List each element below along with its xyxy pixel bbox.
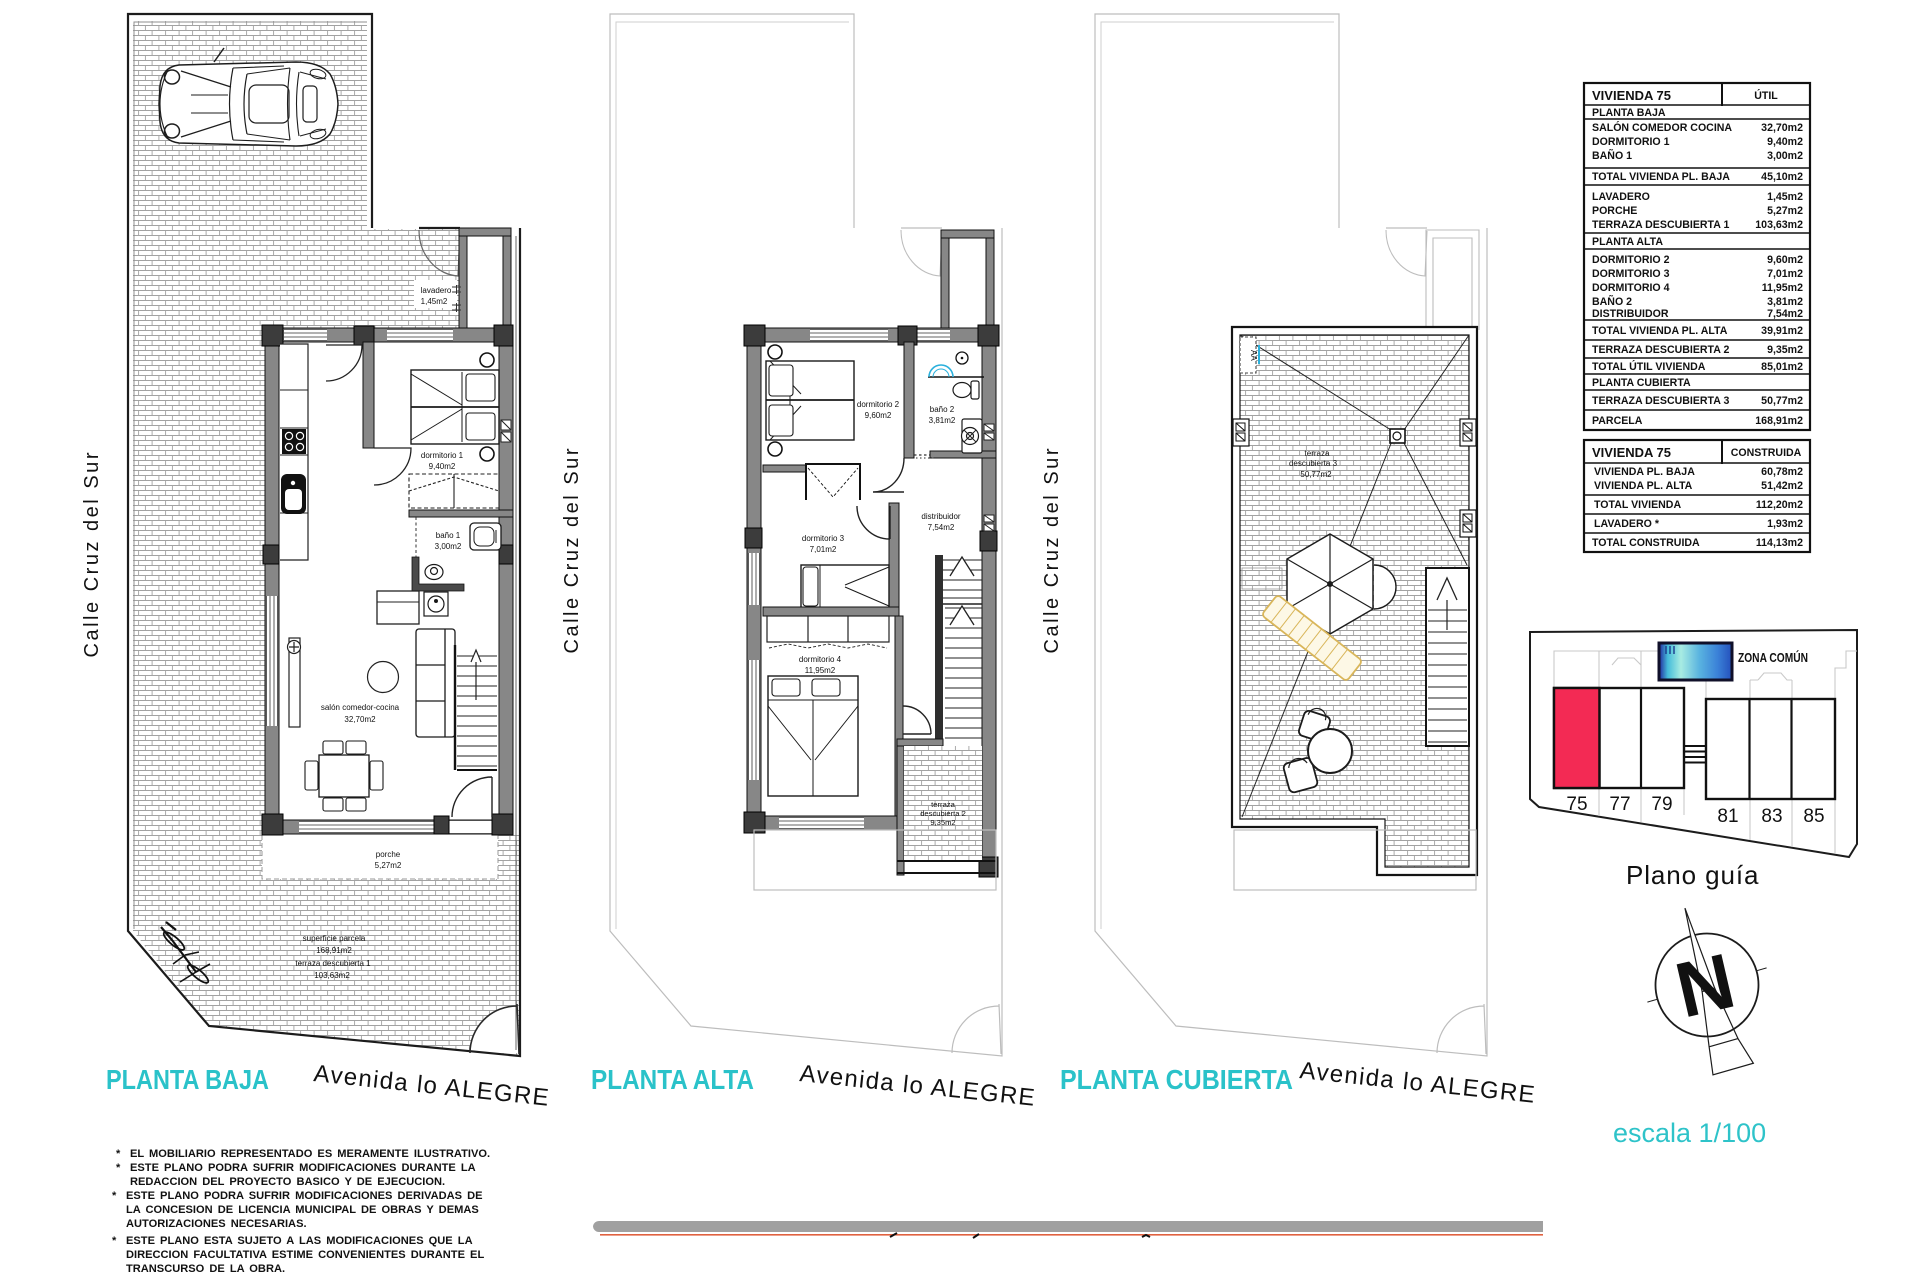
svg-text:75: 75 [1566, 794, 1587, 815]
svg-text:7,01m2: 7,01m2 [1767, 268, 1803, 280]
svg-text:TERRAZA DESCUBIERTA 2: TERRAZA DESCUBIERTA 2 [1592, 344, 1729, 356]
svg-text:85,01m2: 85,01m2 [1761, 361, 1803, 373]
svg-text:Plano guía: Plano guía [1626, 860, 1759, 890]
svg-text:AA: AA [1249, 350, 1258, 361]
svg-text:11,95m2: 11,95m2 [805, 666, 836, 675]
svg-text:DORMITORIO 2: DORMITORIO 2 [1592, 254, 1670, 266]
svg-text:terraza: terraza [1305, 449, 1330, 458]
svg-text:dormitorio 3: dormitorio 3 [802, 534, 845, 543]
svg-text:ESTE PLANO PODRA SUFRIR MODIFI: ESTE PLANO PODRA SUFRIR MODIFICACIONES D… [126, 1190, 483, 1202]
svg-text:dormitorio 2: dormitorio 2 [857, 400, 900, 409]
svg-text:7,54m2: 7,54m2 [1767, 308, 1803, 320]
svg-text:DORMITORIO 4: DORMITORIO 4 [1592, 282, 1670, 294]
svg-text:baño 2: baño 2 [930, 405, 955, 414]
svg-text:VIVIENDA PL. BAJA: VIVIENDA PL. BAJA [1594, 466, 1695, 478]
svg-text:103,63m2: 103,63m2 [1755, 219, 1803, 231]
svg-text:TOTAL VIVIENDA PL. BAJA: TOTAL VIVIENDA PL. BAJA [1592, 171, 1730, 183]
svg-text:168,91m2: 168,91m2 [316, 946, 352, 955]
svg-text:TOTAL VIVIENDA PL. ALTA: TOTAL VIVIENDA PL. ALTA [1592, 325, 1728, 337]
svg-text:CONSTRUIDA: CONSTRUIDA [1731, 447, 1802, 459]
svg-text:32,70m2: 32,70m2 [344, 715, 376, 724]
svg-text:60,78m2: 60,78m2 [1761, 466, 1803, 478]
svg-text:LAVADERO: LAVADERO [1592, 191, 1650, 203]
svg-text:LA CONCESION DE LICENCIA MUNIC: LA CONCESION DE LICENCIA MUNICIPAL DE OB… [126, 1204, 479, 1216]
svg-text:1,93m2: 1,93m2 [1767, 518, 1803, 530]
svg-text:7,01m2: 7,01m2 [810, 545, 837, 554]
svg-text:superficie parcela: superficie parcela [303, 934, 366, 943]
svg-text:BAÑO 2: BAÑO 2 [1592, 295, 1632, 308]
svg-text:3,81m2: 3,81m2 [1767, 296, 1803, 308]
svg-text:TERRAZA DESCUBIERTA 3: TERRAZA DESCUBIERTA 3 [1592, 395, 1729, 407]
svg-text:DIRECCION FACULTATIVA ESTIME C: DIRECCION FACULTATIVA ESTIME CONVENIENTE… [126, 1249, 484, 1261]
svg-text:dormitorio 1: dormitorio 1 [421, 451, 464, 460]
svg-text:TERRAZA DESCUBIERTA 1: TERRAZA DESCUBIERTA 1 [1592, 219, 1729, 231]
svg-text:112,20m2: 112,20m2 [1756, 499, 1803, 511]
svg-text:VIVIENDA 75: VIVIENDA 75 [1592, 445, 1671, 460]
svg-text:ESTE PLANO PODRA SUFRIR MODIFI: ESTE PLANO PODRA SUFRIR MODIFICACIONES D… [130, 1162, 476, 1174]
svg-text:TOTAL ÚTIL VIVIENDA: TOTAL ÚTIL VIVIENDA [1592, 360, 1706, 373]
svg-text:ZONA COMÚN: ZONA COMÚN [1738, 650, 1808, 665]
svg-text:terraza descubierta 1: terraza descubierta 1 [295, 959, 371, 968]
svg-text:DISTRIBUIDOR: DISTRIBUIDOR [1592, 308, 1669, 320]
svg-text:PLANTA ALTA: PLANTA ALTA [1592, 236, 1663, 248]
svg-text:83: 83 [1761, 806, 1782, 827]
svg-text:ÚTIL: ÚTIL [1754, 89, 1778, 102]
svg-text:TOTAL VIVIENDA: TOTAL VIVIENDA [1594, 499, 1681, 511]
svg-text:porche: porche [376, 850, 401, 859]
svg-text:114,13m2: 114,13m2 [1756, 537, 1803, 549]
svg-text:PLANTA BAJA: PLANTA BAJA [106, 1064, 269, 1095]
svg-text:45,10m2: 45,10m2 [1761, 171, 1803, 183]
svg-text:EL MOBILIARIO REPRESENTADO ES: EL MOBILIARIO REPRESENTADO ES MERAMENTE … [130, 1148, 490, 1160]
svg-text:32,70m2: 32,70m2 [1761, 122, 1803, 134]
svg-text:39,91m2: 39,91m2 [1761, 325, 1803, 337]
svg-text:9,60m2: 9,60m2 [865, 411, 892, 420]
svg-text:5,27m2: 5,27m2 [375, 861, 402, 870]
svg-text:VIVIENDA PL. ALTA: VIVIENDA PL. ALTA [1594, 480, 1693, 492]
svg-text:dormitorio 4: dormitorio 4 [799, 655, 842, 664]
svg-text:3,81m2: 3,81m2 [929, 416, 956, 425]
svg-text:TRANSCURSO DE LA OBRA.: TRANSCURSO DE LA OBRA. [126, 1263, 285, 1275]
svg-text:DORMITORIO 3: DORMITORIO 3 [1592, 268, 1670, 280]
svg-text:9,35m2: 9,35m2 [930, 818, 955, 827]
svg-text:PORCHE: PORCHE [1592, 205, 1637, 217]
svg-text:descubierta 3: descubierta 3 [1289, 459, 1338, 468]
svg-text:3,00m2: 3,00m2 [1767, 150, 1803, 162]
svg-text:*: * [112, 1190, 117, 1202]
svg-text:9,60m2: 9,60m2 [1767, 254, 1803, 266]
svg-text:SALÓN COMEDOR COCINA: SALÓN COMEDOR COCINA [1592, 121, 1732, 134]
svg-text:1,45m2: 1,45m2 [1767, 191, 1803, 203]
svg-text:PLANTA CUBIERTA: PLANTA CUBIERTA [1592, 377, 1691, 389]
svg-text:9,40m2: 9,40m2 [429, 462, 456, 471]
svg-text:7,54m2: 7,54m2 [928, 523, 955, 532]
svg-text:PARCELA: PARCELA [1592, 415, 1643, 427]
svg-text:VIVIENDA 75: VIVIENDA 75 [1592, 88, 1671, 103]
svg-text:11,95m2: 11,95m2 [1762, 282, 1803, 294]
svg-text:baño 1: baño 1 [436, 531, 461, 540]
svg-text:escala 1/100: escala 1/100 [1613, 1118, 1766, 1148]
svg-text:distribuidor: distribuidor [921, 512, 960, 521]
svg-text:Calle Cruz del Sur: Calle Cruz del Sur [81, 452, 103, 657]
svg-text:168,91m2: 168,91m2 [1755, 415, 1803, 427]
svg-text:AUTORIZACIONES NECESARIAS.: AUTORIZACIONES NECESARIAS. [126, 1218, 307, 1230]
svg-text:PLANTA BAJA: PLANTA BAJA [1592, 107, 1666, 119]
svg-text:LAVADERO *: LAVADERO * [1594, 518, 1660, 530]
svg-text:Calle Cruz del Sur: Calle Cruz del Sur [561, 448, 583, 653]
svg-text:50,77m2: 50,77m2 [1761, 395, 1803, 407]
svg-text:5,27m2: 5,27m2 [1767, 205, 1803, 217]
svg-text:terraza: terraza [931, 800, 955, 809]
svg-text:79: 79 [1651, 794, 1672, 815]
svg-text:3,00m2: 3,00m2 [435, 542, 462, 551]
svg-text:50,77m2: 50,77m2 [1300, 470, 1332, 479]
svg-text:salón comedor-cocina: salón comedor-cocina [321, 703, 400, 712]
svg-text:9,40m2: 9,40m2 [1767, 136, 1803, 148]
svg-text:BAÑO 1: BAÑO 1 [1592, 149, 1632, 162]
svg-text:*: * [112, 1235, 117, 1247]
svg-text:ESTE PLANO ESTA SUJETO A LAS M: ESTE PLANO ESTA SUJETO A LAS MODIFICACIO… [126, 1235, 473, 1247]
svg-text:103,63m2: 103,63m2 [314, 971, 350, 980]
svg-text:TOTAL CONSTRUIDA: TOTAL CONSTRUIDA [1592, 537, 1700, 549]
svg-text:*: * [116, 1162, 121, 1174]
svg-text:PLANTA ALTA: PLANTA ALTA [591, 1064, 754, 1095]
svg-text:1,45m2: 1,45m2 [421, 297, 448, 306]
svg-text:DORMITORIO 1: DORMITORIO 1 [1592, 136, 1670, 148]
svg-text:descubierta 2: descubierta 2 [920, 809, 966, 818]
svg-text:lavadero: lavadero [421, 286, 452, 295]
svg-text:81: 81 [1717, 806, 1738, 827]
svg-text:PLANTA CUBIERTA: PLANTA CUBIERTA [1060, 1064, 1293, 1095]
svg-text:*: * [116, 1148, 121, 1160]
svg-text:77: 77 [1609, 794, 1630, 815]
svg-text:85: 85 [1803, 806, 1824, 827]
svg-text:Calle Cruz del Sur: Calle Cruz del Sur [1041, 448, 1063, 653]
svg-text:51,42m2: 51,42m2 [1761, 480, 1803, 492]
svg-text:REDACCION DEL PROYECTO BASICO: REDACCION DEL PROYECTO BASICO Y DE EJECU… [130, 1176, 445, 1188]
svg-text:9,35m2: 9,35m2 [1767, 344, 1803, 356]
